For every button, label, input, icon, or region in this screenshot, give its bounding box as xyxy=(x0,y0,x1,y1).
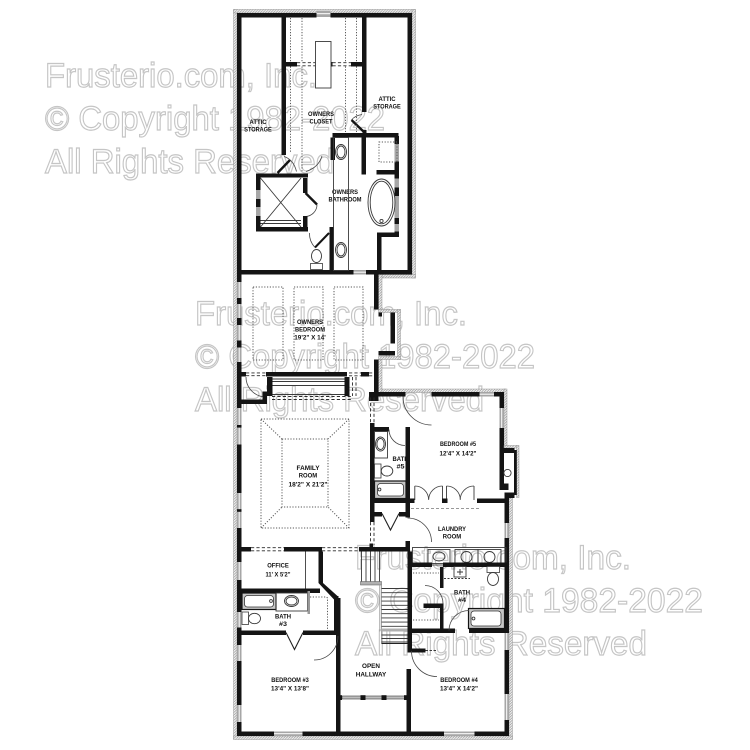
svg-text:18'2" X 21'2": 18'2" X 21'2" xyxy=(289,482,328,489)
svg-text:BATH: BATH xyxy=(275,614,291,621)
svg-text:BATH: BATH xyxy=(454,590,470,597)
svg-text:BEDROOM #5: BEDROOM #5 xyxy=(440,441,476,448)
svg-text:LAUNDRY: LAUNDRY xyxy=(438,526,467,533)
svg-text:ROOM: ROOM xyxy=(299,473,318,480)
svg-text:STORAGE: STORAGE xyxy=(373,104,401,111)
svg-text:ATTIC: ATTIC xyxy=(250,119,267,126)
svg-text:13'4" X 13'8": 13'4" X 13'8" xyxy=(271,686,309,693)
svg-text:#4: #4 xyxy=(458,597,466,604)
svg-text:FAMILY: FAMILY xyxy=(297,465,321,472)
svg-text:STORAGE: STORAGE xyxy=(244,127,272,134)
svg-text:HALLWAY: HALLWAY xyxy=(356,672,387,679)
svg-text:BEDROOM #4: BEDROOM #4 xyxy=(440,677,478,684)
svg-text:ROOM: ROOM xyxy=(443,534,462,541)
svg-text:© Copyright 1982-2022: © Copyright 1982-2022 xyxy=(45,100,385,138)
svg-text:ATTIC: ATTIC xyxy=(379,96,396,103)
svg-text:OWNERS: OWNERS xyxy=(308,111,335,118)
svg-text:#5: #5 xyxy=(397,464,405,471)
svg-text:OFFICE: OFFICE xyxy=(267,563,289,570)
svg-text:13'4" X 14'2": 13'4" X 14'2" xyxy=(440,686,478,693)
svg-text:© Copyright 1982-2022: © Copyright 1982-2022 xyxy=(195,338,535,376)
svg-text:CLOSET: CLOSET xyxy=(310,119,333,126)
svg-text:OPEN: OPEN xyxy=(362,663,380,670)
svg-text:Frusterio.com, Inc.: Frusterio.com, Inc. xyxy=(45,57,317,95)
svg-text:BEDROOM: BEDROOM xyxy=(295,327,325,334)
svg-text:11' X 5'2": 11' X 5'2" xyxy=(266,572,291,579)
svg-text:12'4" X 14'2": 12'4" X 14'2" xyxy=(440,451,477,458)
svg-text:19'2" X 14': 19'2" X 14' xyxy=(294,335,326,342)
svg-text:OWNERS: OWNERS xyxy=(297,319,324,326)
svg-text:OWNERS: OWNERS xyxy=(332,189,359,196)
svg-text:BEDROOM #3: BEDROOM #3 xyxy=(271,677,309,684)
svg-text:#3: #3 xyxy=(279,621,287,628)
